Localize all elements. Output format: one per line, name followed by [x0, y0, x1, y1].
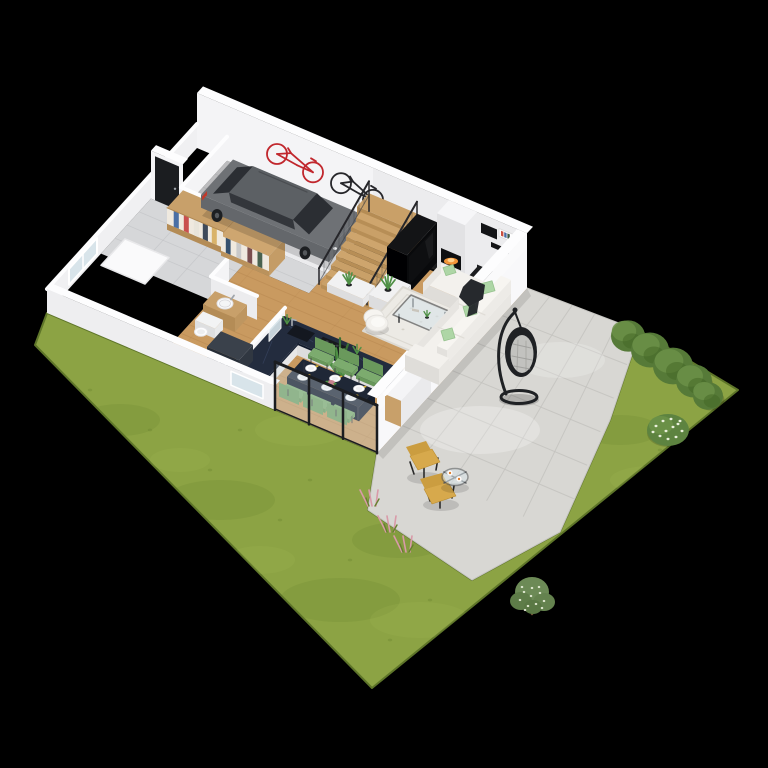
patio-side-table: [441, 469, 469, 494]
floorplan-3d-render: [0, 0, 768, 768]
floorplan-scene: [0, 0, 768, 768]
flowering-bush: [647, 414, 689, 447]
